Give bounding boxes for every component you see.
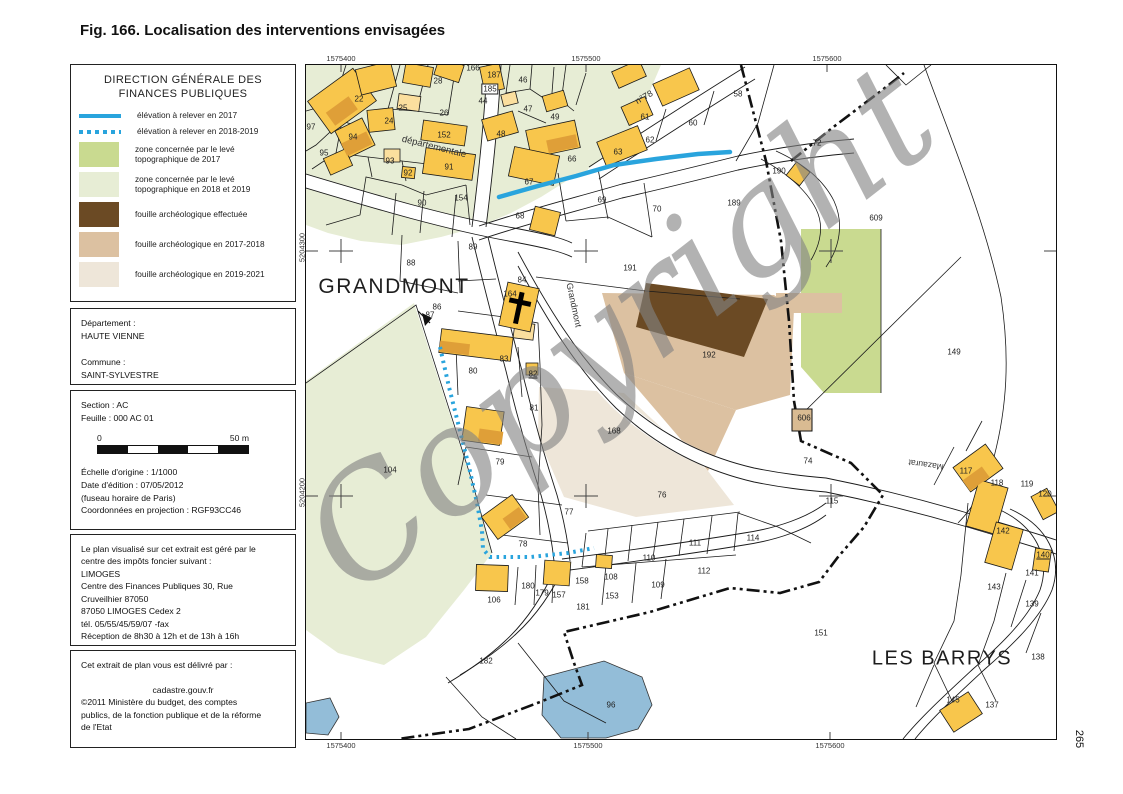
parcel-label: 153 xyxy=(605,592,618,601)
parcel-label: 90 xyxy=(418,199,427,208)
delivery-site: cadastre.gouv.fr xyxy=(81,684,285,696)
parcel-label: 606 xyxy=(797,414,810,423)
grid-coordinate: 1575400 xyxy=(326,741,355,750)
parcel-label: 74 xyxy=(804,457,813,466)
legend-label: fouille archéologique en 2019-2021 xyxy=(135,269,265,279)
parcel-label: 82 xyxy=(529,370,538,379)
delivery-intro: Cet extrait de plan vous est délivré par… xyxy=(81,659,285,671)
parcel-label: 158 xyxy=(575,577,588,586)
parcel-label: 84 xyxy=(518,276,527,285)
page-number: 265 xyxy=(1073,730,1085,748)
parcel-label: 140 xyxy=(1036,551,1049,560)
parcel-label: 25 xyxy=(399,104,408,113)
grid-coordinate: 1575400 xyxy=(326,54,355,63)
section-box: Section : ACFeuille : 000 AC 01 0 50 m É… xyxy=(70,390,296,530)
road-label: départementale xyxy=(401,134,468,161)
road-label: Mazaurat xyxy=(908,458,944,473)
tax-office-text: Le plan visualisé sur cet extrait est gé… xyxy=(71,535,295,651)
legend-label: zone concernée par le levé topographique… xyxy=(135,144,265,165)
parcel-label: 143 xyxy=(987,583,1000,592)
parcel-label: 96 xyxy=(607,701,616,710)
parcel-label: 95 xyxy=(320,149,329,158)
legend-swatch xyxy=(79,202,119,227)
parcel-label: 87 xyxy=(426,311,435,320)
page: { "page": { "caption": "Fig. 166. Locali… xyxy=(0,0,1123,794)
grid-coordinate: 1575600 xyxy=(815,741,844,750)
scale-bar: 0 50 m xyxy=(71,425,295,456)
parcel-label: 109 xyxy=(651,581,664,590)
legend-item: fouille archéologique en 2017-2018 xyxy=(79,232,295,257)
parcel-label: 115 xyxy=(826,497,839,506)
road-label: Grandmont xyxy=(564,282,583,328)
legend-item: fouille archéologique en 2019-2021 xyxy=(79,262,295,287)
legend-swatch xyxy=(79,232,119,257)
parcel-label: 187 xyxy=(487,71,500,80)
parcel-label: 69 xyxy=(598,196,607,205)
tax-office-box: Le plan visualisé sur cet extrait est gé… xyxy=(70,534,296,646)
legend-label: élévation à relever en 2018-2019 xyxy=(137,126,267,136)
parcel-label: 166 xyxy=(466,64,479,73)
place-label: LES BARRYS xyxy=(872,648,1012,671)
section-text: Section : ACFeuille : 000 AC 01 xyxy=(71,391,295,425)
parcel-label: 28 xyxy=(434,77,443,86)
legend-swatch xyxy=(79,262,119,287)
delivery-copyright: ©2011 Ministère du budget, des comptespu… xyxy=(81,696,285,733)
parcel-label: 77 xyxy=(565,508,574,517)
parcel-label: 112 xyxy=(698,567,711,576)
parcel-label: 137 xyxy=(985,701,998,710)
parcel-label: 189 xyxy=(727,199,740,208)
parcel-label: 151 xyxy=(814,629,827,638)
parcel-label: 609 xyxy=(869,214,882,223)
parcel-label: 108 xyxy=(604,573,617,582)
road-label: n°78 xyxy=(633,88,654,106)
parcel-label: 117 xyxy=(960,467,973,476)
legend-swatch xyxy=(79,142,119,167)
parcel-label: 70 xyxy=(653,205,662,214)
grid-coordinate: 5204200 xyxy=(298,470,307,516)
delivery-box: Cet extrait de plan vous est délivré par… xyxy=(70,650,296,748)
legend-box: DIRECTION GÉNÉRALE DESFINANCES PUBLIQUES… xyxy=(70,64,296,302)
map-labels-layer: 9728222524261529495939291901548889166187… xyxy=(306,65,1056,739)
parcel-label: 120 xyxy=(1038,490,1051,499)
parcel-label: 104 xyxy=(383,466,396,475)
parcel-label: 111 xyxy=(689,539,701,548)
parcel-label: 179 xyxy=(535,589,548,598)
parcel-label: 81 xyxy=(530,404,539,413)
parcel-label: 44 xyxy=(479,97,488,106)
parcel-label: 60 xyxy=(689,119,698,128)
parcel-label: 152 xyxy=(437,131,450,140)
legend-item: zone concernée par le levé topographique… xyxy=(79,172,295,197)
legend-line-sample xyxy=(79,114,121,118)
parcel-label: 191 xyxy=(623,264,636,273)
parcel-label: 49 xyxy=(551,113,560,122)
parcel-label: 89 xyxy=(469,243,478,252)
parcel-label: 46 xyxy=(519,76,528,85)
parcel-label: 76 xyxy=(658,491,667,500)
parcel-label: 79 xyxy=(496,458,505,467)
scale-start-label: 0 xyxy=(97,433,102,443)
parcel-label: 22 xyxy=(355,95,364,104)
parcel-label: 61 xyxy=(641,113,650,122)
parcel-label: 80 xyxy=(469,367,478,376)
parcel-label: 106 xyxy=(487,596,500,605)
parcel-label: 93 xyxy=(386,157,395,166)
legend-line-sample xyxy=(79,130,121,134)
parcel-label: 164 xyxy=(503,290,516,299)
legend-label: élévation à relever en 2017 xyxy=(137,110,267,120)
grid-coordinate: 1575500 xyxy=(571,54,600,63)
parcel-label: 139 xyxy=(1025,600,1038,609)
identity-text: Département :HAUTE VIENNE Commune :SAINT… xyxy=(71,309,295,389)
parcel-label: 24 xyxy=(385,117,394,126)
parcel-label: 83 xyxy=(500,355,509,364)
parcel-label: 114 xyxy=(747,534,760,543)
grid-coordinate: 1575600 xyxy=(812,54,841,63)
legend-item: zone concernée par le levé topographique… xyxy=(79,142,295,167)
parcel-label: 48 xyxy=(497,130,506,139)
parcel-label: 149 xyxy=(947,348,960,357)
parcel-label: 145 xyxy=(946,696,959,705)
cadastral-map: Copyright 972822252426152949593929190154… xyxy=(305,64,1057,740)
parcel-label: 67 xyxy=(525,178,534,187)
grid-coordinate: 1575500 xyxy=(573,741,602,750)
legend-list: élévation à relever en 2017élévation à r… xyxy=(71,104,295,287)
issuer-title: DIRECTION GÉNÉRALE DESFINANCES PUBLIQUES xyxy=(71,65,295,104)
parcel-label: 110 xyxy=(643,554,656,563)
scale-end-label: 50 m xyxy=(230,433,249,443)
parcel-label: 141 xyxy=(1025,569,1038,578)
parcel-label: 88 xyxy=(407,259,416,268)
parcel-label: 142 xyxy=(996,527,1009,536)
parcel-label: 78 xyxy=(519,540,528,549)
parcel-label: 68 xyxy=(516,212,525,221)
identity-box: Département :HAUTE VIENNE Commune :SAINT… xyxy=(70,308,296,385)
parcel-label: 63 xyxy=(614,148,623,157)
parcel-label: 66 xyxy=(568,155,577,164)
legend-item: élévation à relever en 2018-2019 xyxy=(79,126,295,138)
parcel-label: 62 xyxy=(646,136,655,145)
parcel-label: 26 xyxy=(440,109,449,118)
parcel-label: 72 xyxy=(813,139,822,148)
parcel-label: 168 xyxy=(607,427,620,436)
legend-label: fouille archéologique en 2017-2018 xyxy=(135,239,265,249)
parcel-label: 180 xyxy=(521,582,534,591)
legend-swatch xyxy=(79,172,119,197)
parcel-label: 94 xyxy=(349,133,358,142)
edition-text: Échelle d'origine : 1/1000Date d'édition… xyxy=(71,456,295,526)
legend-item: élévation à relever en 2017 xyxy=(79,110,295,122)
parcel-label: 157 xyxy=(552,591,565,600)
place-label: GRANDMONT xyxy=(318,275,469,299)
parcel-label: 92 xyxy=(404,169,413,178)
parcel-label: 185 xyxy=(481,84,498,95)
parcel-label: 190 xyxy=(772,167,785,176)
parcel-label: 118 xyxy=(991,479,1004,488)
legend-label: zone concernée par le levé topographique… xyxy=(135,174,265,195)
parcel-label: 47 xyxy=(524,105,533,114)
parcel-label: 58 xyxy=(734,90,743,99)
legend-label: fouille archéologique effectuée xyxy=(135,209,265,219)
parcel-label: 138 xyxy=(1031,653,1044,662)
figure-caption: Fig. 166. Localisation des interventions… xyxy=(80,22,445,39)
parcel-label: 181 xyxy=(576,603,589,612)
grid-coordinate: 5204300 xyxy=(298,225,307,271)
parcel-label: 97 xyxy=(307,123,316,132)
scale-bar-graphic xyxy=(97,445,249,454)
parcel-label: 192 xyxy=(702,351,715,360)
parcel-label: 119 xyxy=(1021,480,1034,489)
parcel-label: 182 xyxy=(479,657,492,666)
parcel-label: 91 xyxy=(445,163,454,172)
parcel-label: 154 xyxy=(454,194,467,203)
legend-item: fouille archéologique effectuée xyxy=(79,202,295,227)
